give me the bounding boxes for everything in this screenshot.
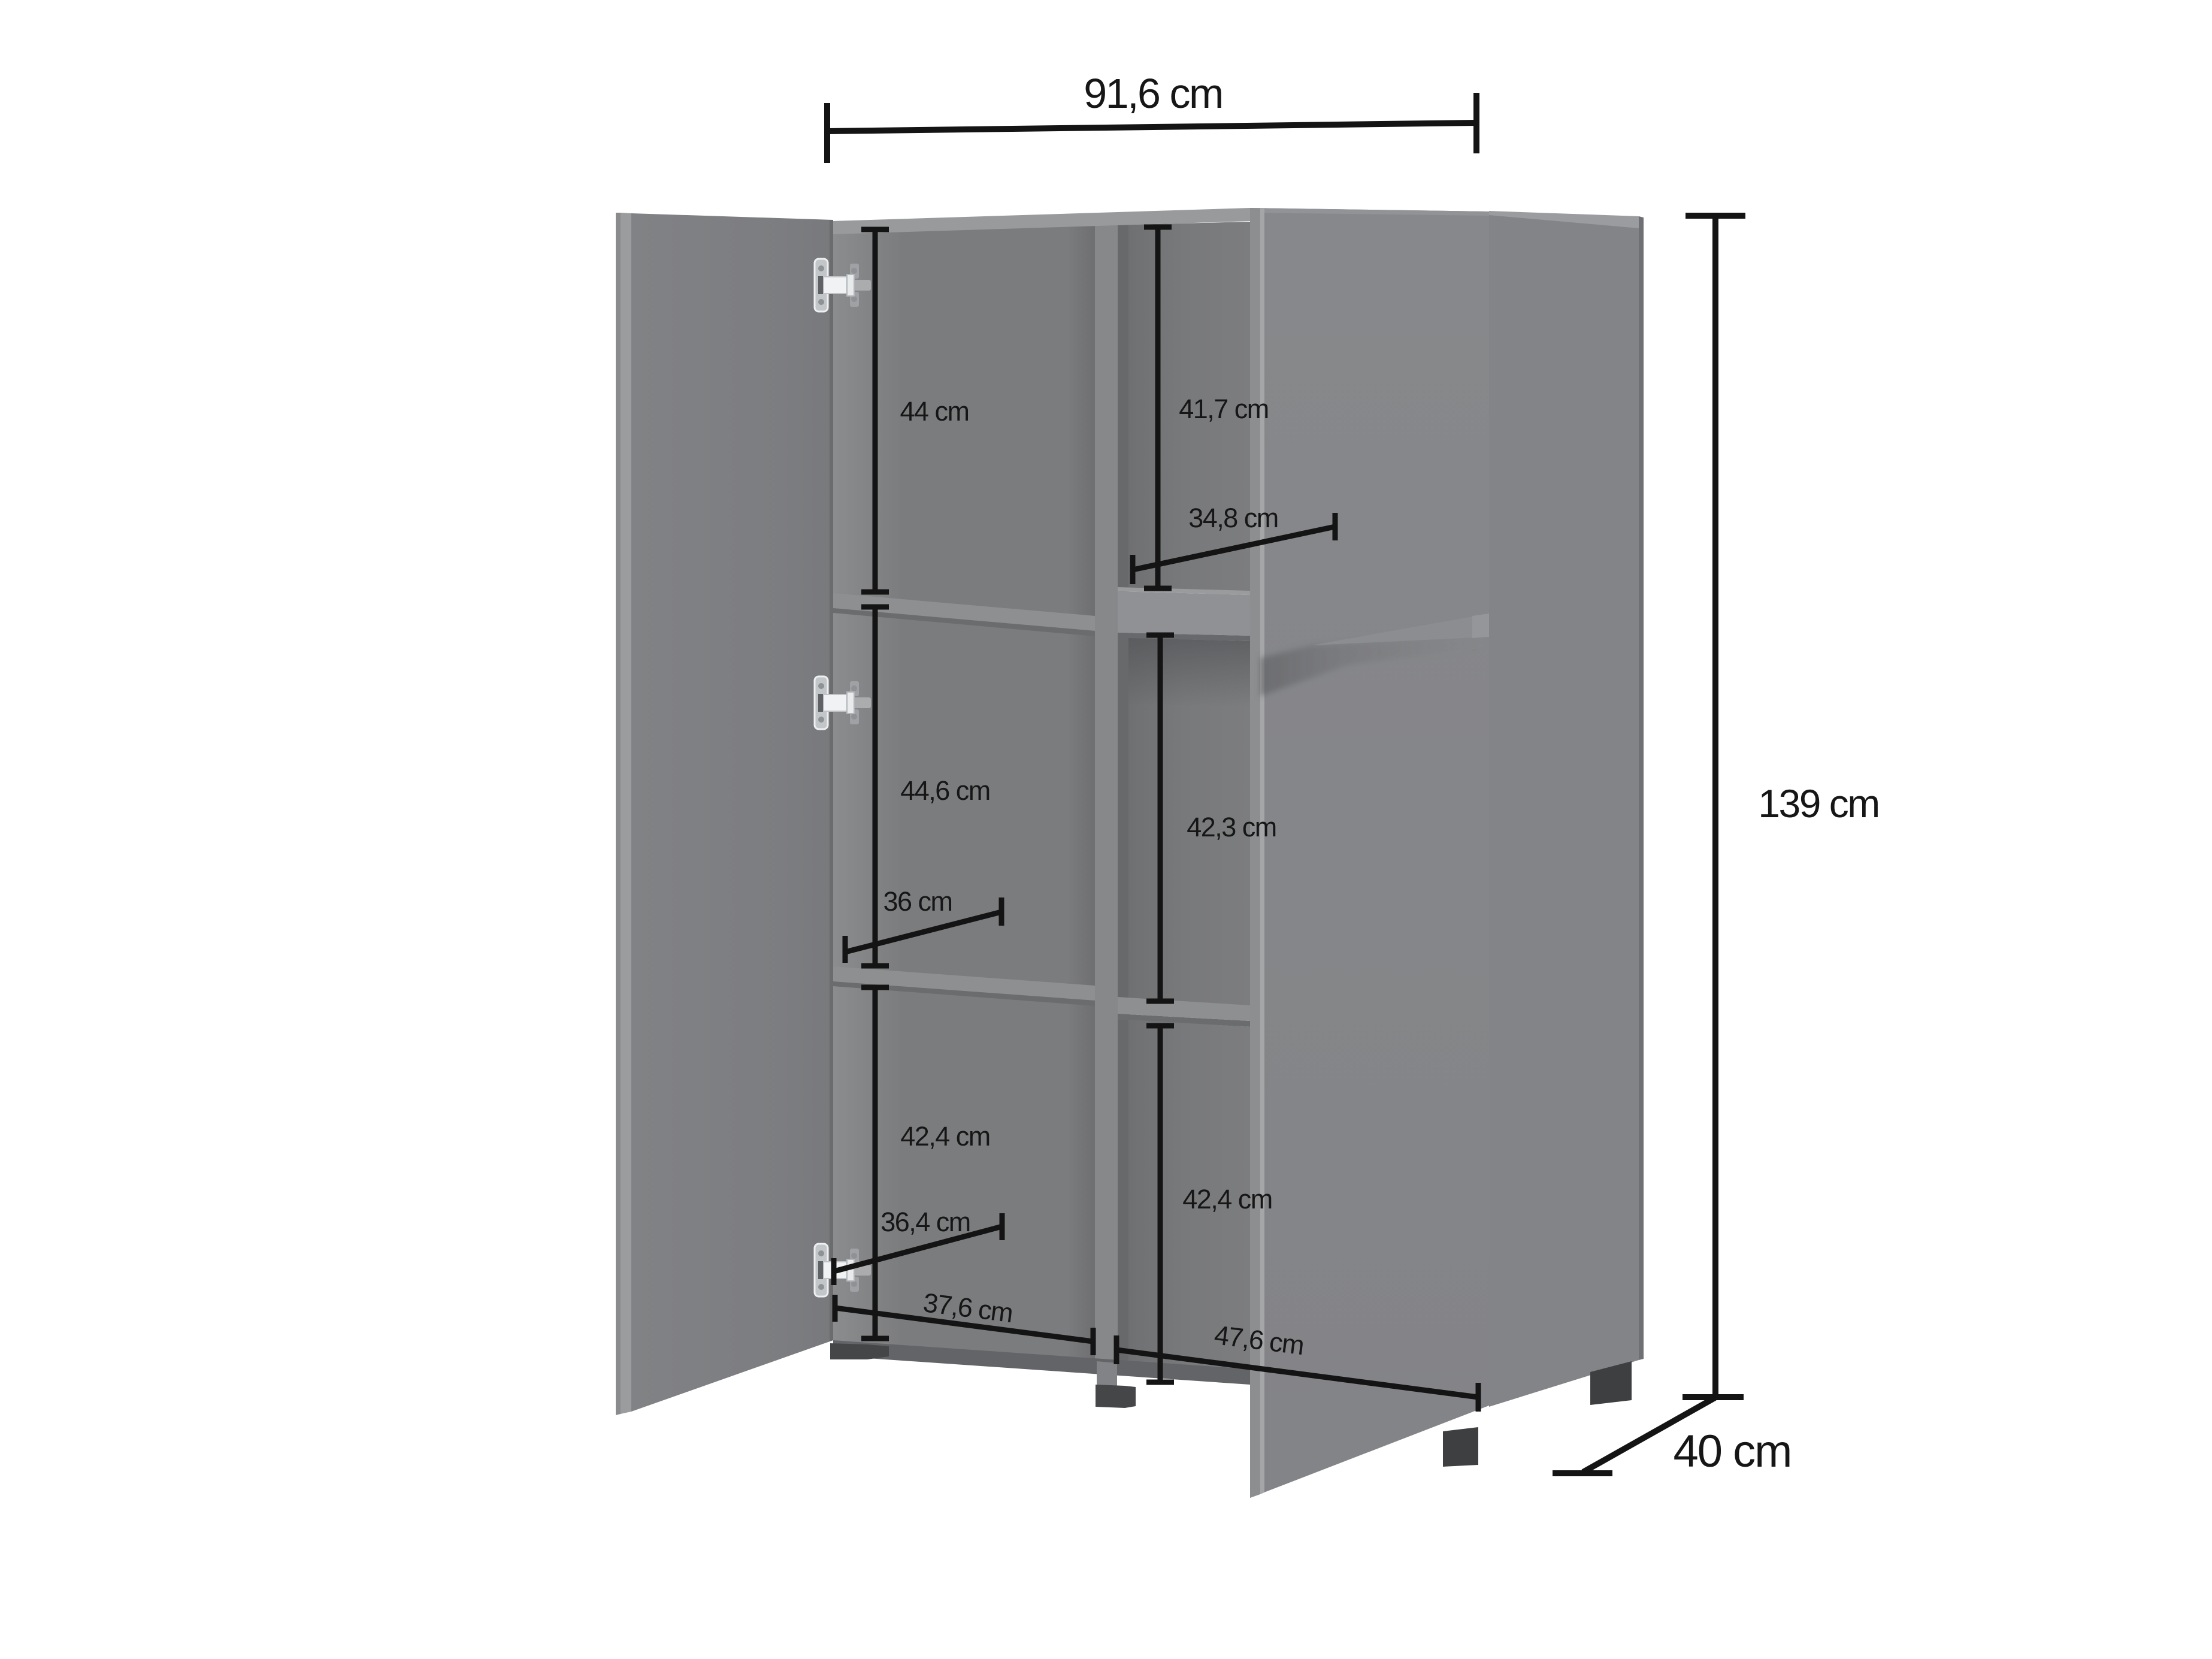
svg-text:42,4 cm: 42,4 cm	[1182, 1184, 1272, 1214]
svg-text:139 cm: 139 cm	[1758, 781, 1878, 826]
svg-text:36,4 cm: 36,4 cm	[880, 1207, 970, 1237]
svg-text:41,7 cm: 41,7 cm	[1179, 394, 1269, 424]
svg-text:42,4 cm: 42,4 cm	[900, 1121, 990, 1152]
svg-text:36 cm: 36 cm	[883, 886, 952, 917]
svg-text:34,8 cm: 34,8 cm	[1188, 503, 1278, 533]
svg-text:44 cm: 44 cm	[900, 396, 969, 427]
svg-text:91,6 cm: 91,6 cm	[1084, 70, 1222, 117]
svg-text:42,3 cm: 42,3 cm	[1187, 812, 1276, 842]
svg-text:44,6 cm: 44,6 cm	[900, 775, 990, 806]
svg-text:40 cm: 40 cm	[1674, 1426, 1792, 1477]
